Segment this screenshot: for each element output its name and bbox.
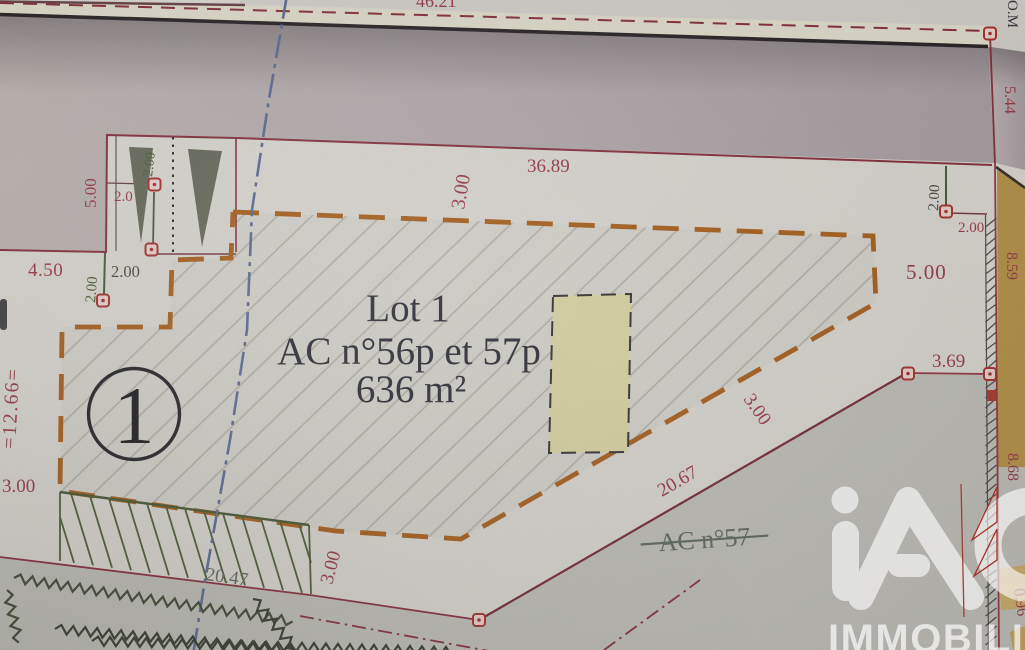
svg-text:IMMOBILIE: IMMOBILIE	[828, 617, 1025, 650]
